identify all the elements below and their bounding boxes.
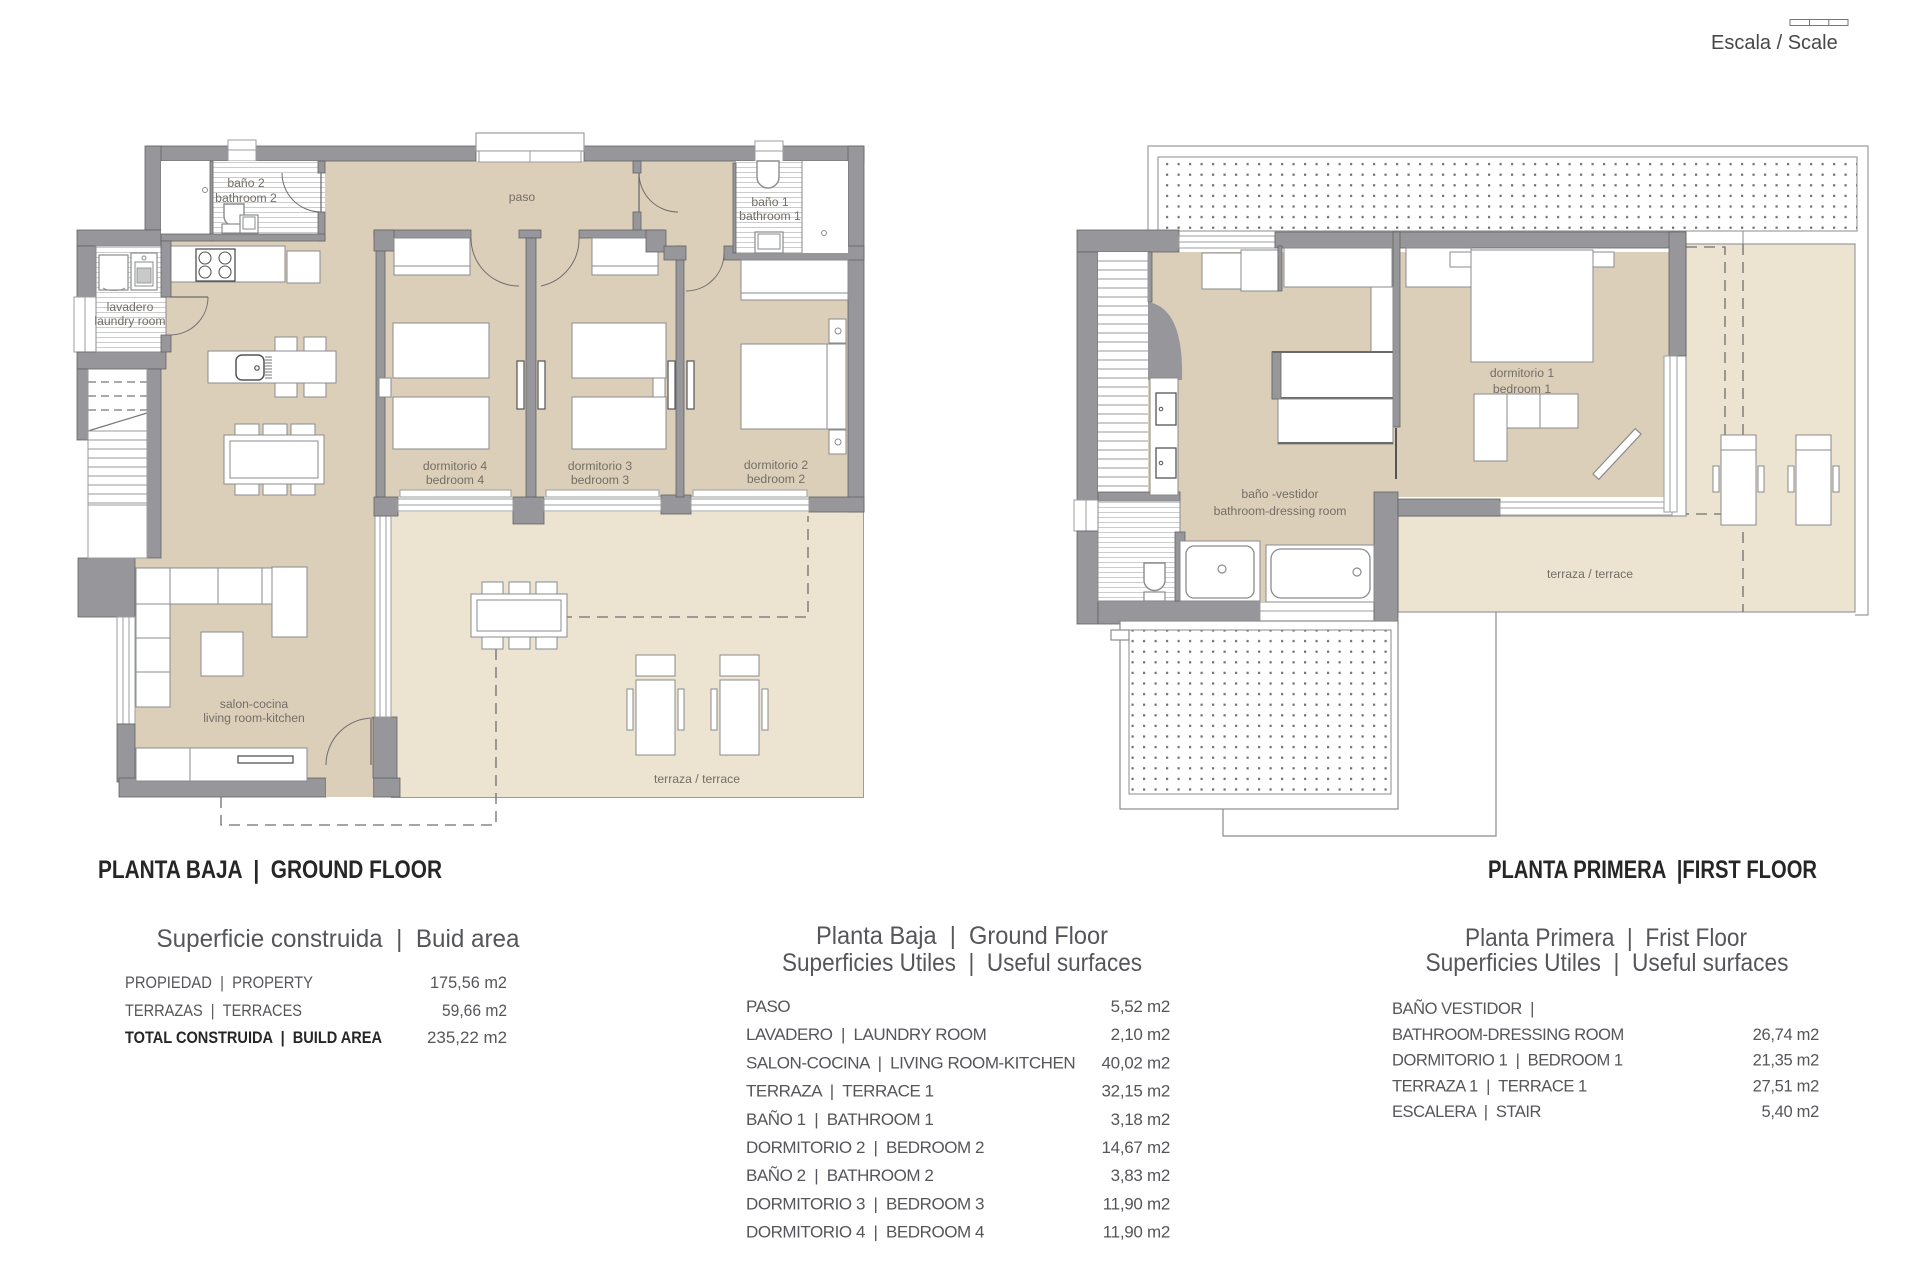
- svg-text:terraza / terrace: terraza / terrace: [654, 772, 740, 786]
- svg-text:bathroom 1: bathroom 1: [739, 209, 801, 223]
- svg-text:bedroom 2: bedroom 2: [747, 472, 805, 486]
- svg-text:27,51 m2: 27,51 m2: [1753, 1077, 1820, 1095]
- svg-text:Superficies Utiles | Useful: Superficies Utiles | Useful surfaces: [782, 949, 1142, 977]
- svg-text:3,18 m2: 3,18 m2: [1111, 1110, 1170, 1129]
- svg-text:salon-cocina: salon-cocina: [220, 697, 289, 711]
- svg-text:bathroom 2: bathroom 2: [215, 191, 277, 205]
- svg-text:BAÑO 2 | BATHROOM 2: BAÑO 2 | BATHROOM 2: [746, 1166, 933, 1185]
- svg-text:5,52 m2: 5,52 m2: [1111, 997, 1170, 1016]
- svg-text:5,40 m2: 5,40 m2: [1761, 1103, 1819, 1121]
- svg-text:Superficies Utiles | Useful: Superficies Utiles | Useful surfaces: [1426, 949, 1789, 977]
- svg-text:PASO: PASO: [746, 997, 790, 1016]
- svg-text:175,56 m2: 175,56 m2: [430, 973, 507, 992]
- svg-text:baño 2: baño 2: [227, 176, 264, 190]
- svg-text:dormitorio 1: dormitorio 1: [1490, 366, 1555, 380]
- svg-text:40,02 m2: 40,02 m2: [1102, 1053, 1170, 1072]
- svg-text:26,74 m2: 26,74 m2: [1753, 1026, 1820, 1044]
- svg-text:21,35 m2: 21,35 m2: [1753, 1052, 1820, 1070]
- svg-text:paso: paso: [509, 190, 536, 204]
- svg-text:TERRAZA 1 | TERRACE 1: TERRAZA 1 | TERRACE 1: [1392, 1077, 1587, 1095]
- svg-text:Planta Primera | Frist Floor: Planta Primera | Frist Floor: [1465, 924, 1747, 952]
- svg-text:PLANTA PRIMERA |FIRST FLOOR: PLANTA PRIMERA |FIRST FLOOR: [1488, 856, 1817, 884]
- svg-text:3,83 m2: 3,83 m2: [1111, 1166, 1170, 1185]
- svg-text:DORMITORIO 1 | BEDROOM 1: DORMITORIO 1 | BEDROOM 1: [1392, 1052, 1623, 1070]
- svg-text:14,67 m2: 14,67 m2: [1102, 1138, 1170, 1157]
- svg-text:ESCALERA | STAIR: ESCALERA | STAIR: [1392, 1103, 1542, 1121]
- svg-text:terraza / terrace: terraza / terrace: [1547, 567, 1633, 581]
- svg-text:DORMITORIO 3 | BEDROOM 3: DORMITORIO 3 | BEDROOM 3: [746, 1194, 984, 1213]
- svg-text:Escala / Scale: Escala / Scale: [1711, 32, 1838, 54]
- svg-text:baño 1: baño 1: [751, 195, 788, 209]
- svg-text:TOTAL CONSTRUIDA | BUILD ARE: TOTAL CONSTRUIDA | BUILD AREA: [125, 1028, 382, 1047]
- svg-text:TERRAZAS | TERRACES: TERRAZAS | TERRACES: [125, 1001, 302, 1020]
- svg-text:Superficie construida | Buid: Superficie construida | Buid area: [157, 925, 520, 953]
- svg-text:PROPIEDAD | PROPERTY: PROPIEDAD | PROPERTY: [125, 973, 313, 992]
- svg-text:11,90 m2: 11,90 m2: [1103, 1194, 1170, 1213]
- svg-text:lavadero: lavadero: [107, 300, 154, 314]
- svg-text:baño -vestidor: baño -vestidor: [1241, 487, 1318, 501]
- svg-text:2,10 m2: 2,10 m2: [1111, 1025, 1170, 1044]
- svg-text:TERRAZA | TERRACE 1: TERRAZA | TERRACE 1: [746, 1082, 934, 1101]
- svg-text:bathroom-dressing room: bathroom-dressing room: [1214, 504, 1347, 518]
- svg-text:BATHROOM-DRESSING ROOM: BATHROOM-DRESSING ROOM: [1392, 1026, 1624, 1044]
- svg-text:SALON-COCINA | LIVING ROOM-K: SALON-COCINA | LIVING ROOM-KITCHEN: [746, 1053, 1075, 1072]
- svg-text:59,66 m2: 59,66 m2: [442, 1001, 507, 1020]
- svg-text:dormitorio 3: dormitorio 3: [568, 459, 633, 473]
- svg-text:PLANTA BAJA | GROUND FLOOR: PLANTA BAJA | GROUND FLOOR: [98, 856, 442, 884]
- svg-text:11,90 m2: 11,90 m2: [1103, 1223, 1170, 1242]
- svg-text:32,15 m2: 32,15 m2: [1102, 1082, 1170, 1101]
- svg-text:BAÑO 1 | BATHROOM 1: BAÑO 1 | BATHROOM 1: [746, 1110, 933, 1129]
- svg-text:DORMITORIO 2 | BEDROOM 2: DORMITORIO 2 | BEDROOM 2: [746, 1138, 984, 1157]
- svg-text:dormitorio 2: dormitorio 2: [744, 458, 809, 472]
- svg-text:bedroom 3: bedroom 3: [571, 473, 629, 487]
- svg-text:bedroom 1: bedroom 1: [1493, 382, 1551, 396]
- svg-text:LAVADERO | LAUNDRY ROOM: LAVADERO | LAUNDRY ROOM: [746, 1025, 986, 1044]
- svg-text:235,22 m2: 235,22 m2: [427, 1028, 507, 1047]
- svg-text:dormitorio 4: dormitorio 4: [423, 459, 488, 473]
- svg-text:laundry room: laundry room: [94, 314, 165, 328]
- svg-text:bedroom 4: bedroom 4: [426, 473, 484, 487]
- svg-text:Planta Baja | Ground Floor: Planta Baja | Ground Floor: [816, 922, 1108, 950]
- svg-text:living room-kitchen: living room-kitchen: [203, 711, 305, 725]
- svg-text:DORMITORIO 4 | BEDROOM 4: DORMITORIO 4 | BEDROOM 4: [746, 1223, 984, 1242]
- svg-text:BAÑO VESTIDOR |: BAÑO VESTIDOR |: [1392, 998, 1534, 1018]
